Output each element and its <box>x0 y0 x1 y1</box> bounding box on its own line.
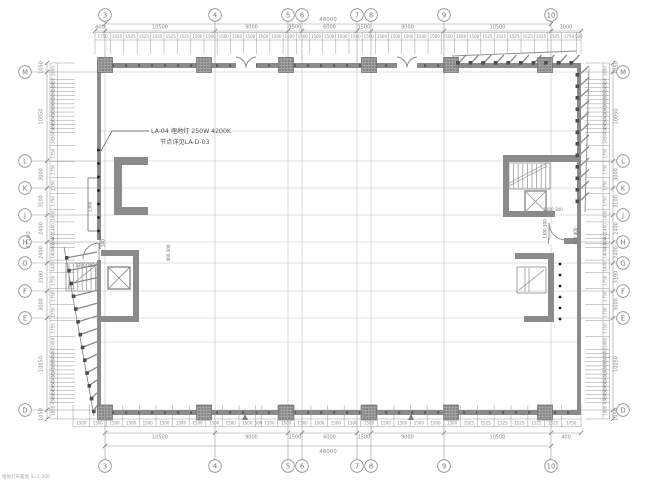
svg-text:1750: 1750 <box>51 196 56 207</box>
svg-text:7: 7 <box>355 11 359 19</box>
drawing-caption: 埋地灯布置图 S=1:200 <box>2 473 50 480</box>
svg-text:1500: 1500 <box>381 421 392 426</box>
svg-text:1525: 1525 <box>482 34 493 39</box>
svg-text:D: D <box>22 406 27 414</box>
dim-overall-top: 48000 <box>319 17 337 23</box>
stair-elevator-cores <box>66 155 581 322</box>
svg-text:3100: 3100 <box>614 271 620 284</box>
svg-text:1450: 1450 <box>602 337 607 348</box>
detail-dimensions: 1300 300400 30013005001300 3001300 10060… <box>75 201 578 268</box>
svg-text:3000: 3000 <box>614 298 620 311</box>
svg-text:K: K <box>621 184 626 192</box>
svg-text:450: 450 <box>602 396 607 404</box>
svg-text:1525: 1525 <box>166 34 177 39</box>
svg-text:1800: 1800 <box>51 66 56 77</box>
svg-text:M: M <box>620 68 626 76</box>
svg-text:1750: 1750 <box>602 275 607 286</box>
svg-text:1525: 1525 <box>152 34 163 39</box>
svg-text:1750: 1750 <box>51 307 56 318</box>
detail-dim-left-dots-end: 500 <box>101 239 106 247</box>
svg-text:4: 4 <box>213 462 217 470</box>
svg-text:1500: 1500 <box>443 34 454 39</box>
svg-text:1400: 1400 <box>602 223 607 234</box>
svg-text:1500: 1500 <box>377 34 388 39</box>
svg-text:1500: 1500 <box>281 421 292 426</box>
svg-text:1500: 1500 <box>364 34 375 39</box>
svg-text:1450: 1450 <box>51 134 56 145</box>
svg-text:1800: 1800 <box>602 66 607 77</box>
svg-text:6000: 6000 <box>323 435 336 441</box>
svg-text:J: J <box>621 211 624 219</box>
svg-text:1750: 1750 <box>51 275 56 286</box>
svg-text:1500: 1500 <box>469 34 480 39</box>
svg-text:1500: 1500 <box>403 34 414 39</box>
svg-text:10: 10 <box>547 462 556 470</box>
svg-text:1500: 1500 <box>397 421 408 426</box>
cad-drawing-canvas: 4001050090001500600015009000105003000175… <box>0 0 666 482</box>
svg-text:1500: 1500 <box>126 421 137 426</box>
svg-text:1750: 1750 <box>51 323 56 334</box>
svg-text:1525: 1525 <box>548 421 559 426</box>
svg-text:450: 450 <box>51 126 56 134</box>
svg-text:1750: 1750 <box>602 307 607 318</box>
svg-text:400: 400 <box>51 241 56 249</box>
svg-text:E: E <box>23 314 27 322</box>
svg-text:10: 10 <box>547 11 556 19</box>
svg-text:400: 400 <box>95 25 105 31</box>
svg-text:1525: 1525 <box>531 421 542 426</box>
svg-text:1500: 1500 <box>358 25 371 31</box>
svg-text:1750: 1750 <box>602 291 607 302</box>
svg-text:1500: 1500 <box>192 34 203 39</box>
svg-text:2400: 2400 <box>614 222 620 235</box>
svg-text:1525: 1525 <box>464 421 475 426</box>
svg-text:1750: 1750 <box>98 34 109 39</box>
svg-text:1800: 1800 <box>51 405 56 416</box>
svg-text:2400: 2400 <box>39 222 45 235</box>
svg-text:1500: 1500 <box>456 34 467 39</box>
svg-text:10500: 10500 <box>152 435 168 441</box>
svg-text:E: E <box>621 314 625 322</box>
svg-text:1750: 1750 <box>51 148 56 159</box>
svg-text:1500: 1500 <box>143 421 154 426</box>
svg-text:1750: 1750 <box>602 323 607 334</box>
svg-text:3000: 3000 <box>39 298 45 311</box>
svg-text:3: 3 <box>103 462 107 470</box>
svg-text:1450: 1450 <box>51 337 56 348</box>
svg-text:1525: 1525 <box>497 421 508 426</box>
svg-text:3100: 3100 <box>39 271 45 284</box>
svg-text:1400: 1400 <box>51 248 56 259</box>
svg-text:450: 450 <box>602 126 607 134</box>
svg-text:1525: 1525 <box>125 34 136 39</box>
svg-text:1500: 1500 <box>192 421 203 426</box>
svg-text:6: 6 <box>300 11 304 19</box>
svg-text:1750: 1750 <box>564 34 575 39</box>
svg-text:1500: 1500 <box>289 435 302 441</box>
svg-text:6000: 6000 <box>323 25 336 31</box>
svg-text:1750: 1750 <box>602 180 607 191</box>
svg-text:7: 7 <box>355 462 359 470</box>
svg-text:10050: 10050 <box>614 109 620 125</box>
svg-text:2400: 2400 <box>614 246 620 259</box>
svg-text:1500: 1500 <box>176 421 187 426</box>
svg-text:G: G <box>22 259 27 267</box>
svg-text:1500: 1500 <box>93 421 104 426</box>
svg-text:1500: 1500 <box>159 421 170 426</box>
svg-text:1525: 1525 <box>536 34 547 39</box>
svg-text:5: 5 <box>286 11 290 19</box>
svg-text:1500: 1500 <box>364 421 375 426</box>
svg-text:1500: 1500 <box>430 34 441 39</box>
annotation-line1: LA-04 埋地灯 250W 4200K <box>151 127 232 135</box>
svg-text:1500: 1500 <box>264 421 275 426</box>
svg-text:1500: 1500 <box>226 421 237 426</box>
svg-text:3000: 3000 <box>39 168 45 181</box>
dim-overall-left: 37100 <box>26 231 32 249</box>
svg-text:1525: 1525 <box>139 34 150 39</box>
svg-text:1525: 1525 <box>514 421 525 426</box>
svg-text:1400: 1400 <box>602 248 607 259</box>
detail-dim-left-core-v: 400 300 <box>166 244 171 261</box>
svg-text:1500: 1500 <box>324 34 335 39</box>
svg-text:1525: 1525 <box>496 34 507 39</box>
svg-text:5: 5 <box>286 462 290 470</box>
buried-light-dots <box>88 149 561 321</box>
svg-text:1500: 1500 <box>209 421 220 426</box>
svg-text:H: H <box>620 238 625 246</box>
svg-text:9000: 9000 <box>401 435 414 441</box>
svg-text:1500: 1500 <box>447 421 458 426</box>
svg-text:1500: 1500 <box>331 421 342 426</box>
svg-text:1500: 1500 <box>219 34 230 39</box>
svg-text:1500: 1500 <box>285 34 296 39</box>
svg-text:1500: 1500 <box>76 421 87 426</box>
svg-text:1500: 1500 <box>337 34 348 39</box>
svg-text:10500: 10500 <box>490 435 506 441</box>
detail-dim-right-core-v1: 1300 100 <box>543 219 548 239</box>
svg-text:1500: 1500 <box>298 421 309 426</box>
svg-text:1450: 1450 <box>602 134 607 145</box>
grid-bubbles: 334455667788991010MMLLKKJJHHGGFFEEDD <box>19 9 630 473</box>
svg-text:2400: 2400 <box>39 246 45 259</box>
svg-text:9: 9 <box>442 11 446 19</box>
floor-plan-drawing: 4001050090001500600015009000105003000175… <box>0 0 666 482</box>
svg-text:9000: 9000 <box>401 25 414 31</box>
grid-lines <box>99 68 577 410</box>
svg-text:400: 400 <box>602 241 607 249</box>
detail-dim-right-core-v2: 600 400 <box>573 227 578 244</box>
svg-text:3100: 3100 <box>614 195 620 208</box>
svg-text:1500: 1500 <box>358 435 371 441</box>
svg-text:450: 450 <box>51 396 56 404</box>
svg-text:10050: 10050 <box>614 356 620 372</box>
svg-text:1525: 1525 <box>179 34 190 39</box>
svg-text:10500: 10500 <box>490 25 506 31</box>
annotation-line2: 节点详见LA-D-03 <box>160 138 210 146</box>
svg-text:9: 9 <box>442 462 446 470</box>
svg-text:F: F <box>23 287 27 295</box>
svg-text:10050: 10050 <box>39 356 45 372</box>
svg-text:1525: 1525 <box>112 34 123 39</box>
svg-text:1400: 1400 <box>51 210 56 221</box>
svg-text:1500: 1500 <box>258 34 269 39</box>
svg-text:1750: 1750 <box>602 196 607 207</box>
svg-text:9000: 9000 <box>245 25 258 31</box>
svg-text:1750: 1750 <box>51 291 56 302</box>
svg-text:1525: 1525 <box>523 34 534 39</box>
dim-overall-bottom: 48000 <box>319 449 337 455</box>
svg-text:L: L <box>621 157 625 165</box>
svg-text:D: D <box>620 406 625 414</box>
svg-text:1500: 1500 <box>311 34 322 39</box>
svg-text:4: 4 <box>213 11 217 19</box>
hatch-bands <box>64 51 589 416</box>
svg-text:3000: 3000 <box>560 25 573 31</box>
svg-text:1400: 1400 <box>51 261 56 272</box>
dimension-strings: 4001050090001500600015009000105003000175… <box>39 22 620 448</box>
svg-text:3: 3 <box>103 11 107 19</box>
svg-text:1500: 1500 <box>347 421 358 426</box>
svg-text:1750: 1750 <box>51 180 56 191</box>
svg-text:1400: 1400 <box>51 223 56 234</box>
svg-text:1500: 1500 <box>245 34 256 39</box>
svg-text:1750: 1750 <box>602 148 607 159</box>
svg-text:J: J <box>23 211 26 219</box>
svg-text:8: 8 <box>369 462 373 470</box>
svg-text:1525: 1525 <box>481 421 492 426</box>
svg-text:1500: 1500 <box>298 34 309 39</box>
svg-text:1500: 1500 <box>205 34 216 39</box>
svg-text:1500: 1500 <box>289 25 302 31</box>
detail-dim-left-dots-v: 1300 <box>88 201 93 212</box>
svg-text:500: 500 <box>255 421 263 426</box>
annotation-leader-line <box>101 131 149 151</box>
svg-text:G: G <box>620 259 625 267</box>
svg-text:L: L <box>23 157 27 165</box>
svg-text:10050: 10050 <box>39 109 45 125</box>
svg-text:3100: 3100 <box>39 195 45 208</box>
svg-text:1500: 1500 <box>109 421 120 426</box>
svg-text:F: F <box>621 287 625 295</box>
svg-text:1500: 1500 <box>390 34 401 39</box>
svg-text:1750: 1750 <box>51 164 56 175</box>
svg-text:1500: 1500 <box>414 421 425 426</box>
svg-text:6: 6 <box>300 462 304 470</box>
svg-text:8: 8 <box>369 11 373 19</box>
svg-text:1500: 1500 <box>242 421 253 426</box>
detail-dim-left-core-h: 1300 300 <box>75 263 95 268</box>
svg-text:9000: 9000 <box>245 435 258 441</box>
svg-text:1500: 1500 <box>314 421 325 426</box>
svg-text:K: K <box>23 184 28 192</box>
svg-text:1500: 1500 <box>350 34 361 39</box>
svg-text:1500: 1500 <box>430 421 441 426</box>
svg-text:1400: 1400 <box>602 261 607 272</box>
svg-text:1500: 1500 <box>232 34 243 39</box>
detail-dim-right-core-h: 1300 300 <box>543 207 563 212</box>
walls <box>97 57 581 420</box>
svg-text:1800: 1800 <box>602 405 607 416</box>
svg-text:1500: 1500 <box>416 34 427 39</box>
svg-text:400: 400 <box>561 435 571 441</box>
svg-text:M: M <box>22 68 28 76</box>
svg-text:10500: 10500 <box>152 25 168 31</box>
svg-text:1525: 1525 <box>509 34 520 39</box>
svg-text:3000: 3000 <box>614 168 620 181</box>
svg-text:1750: 1750 <box>602 164 607 175</box>
svg-text:1750: 1750 <box>566 421 577 426</box>
svg-text:1500: 1500 <box>271 34 282 39</box>
svg-text:500: 500 <box>575 34 583 39</box>
svg-text:1400: 1400 <box>602 210 607 221</box>
